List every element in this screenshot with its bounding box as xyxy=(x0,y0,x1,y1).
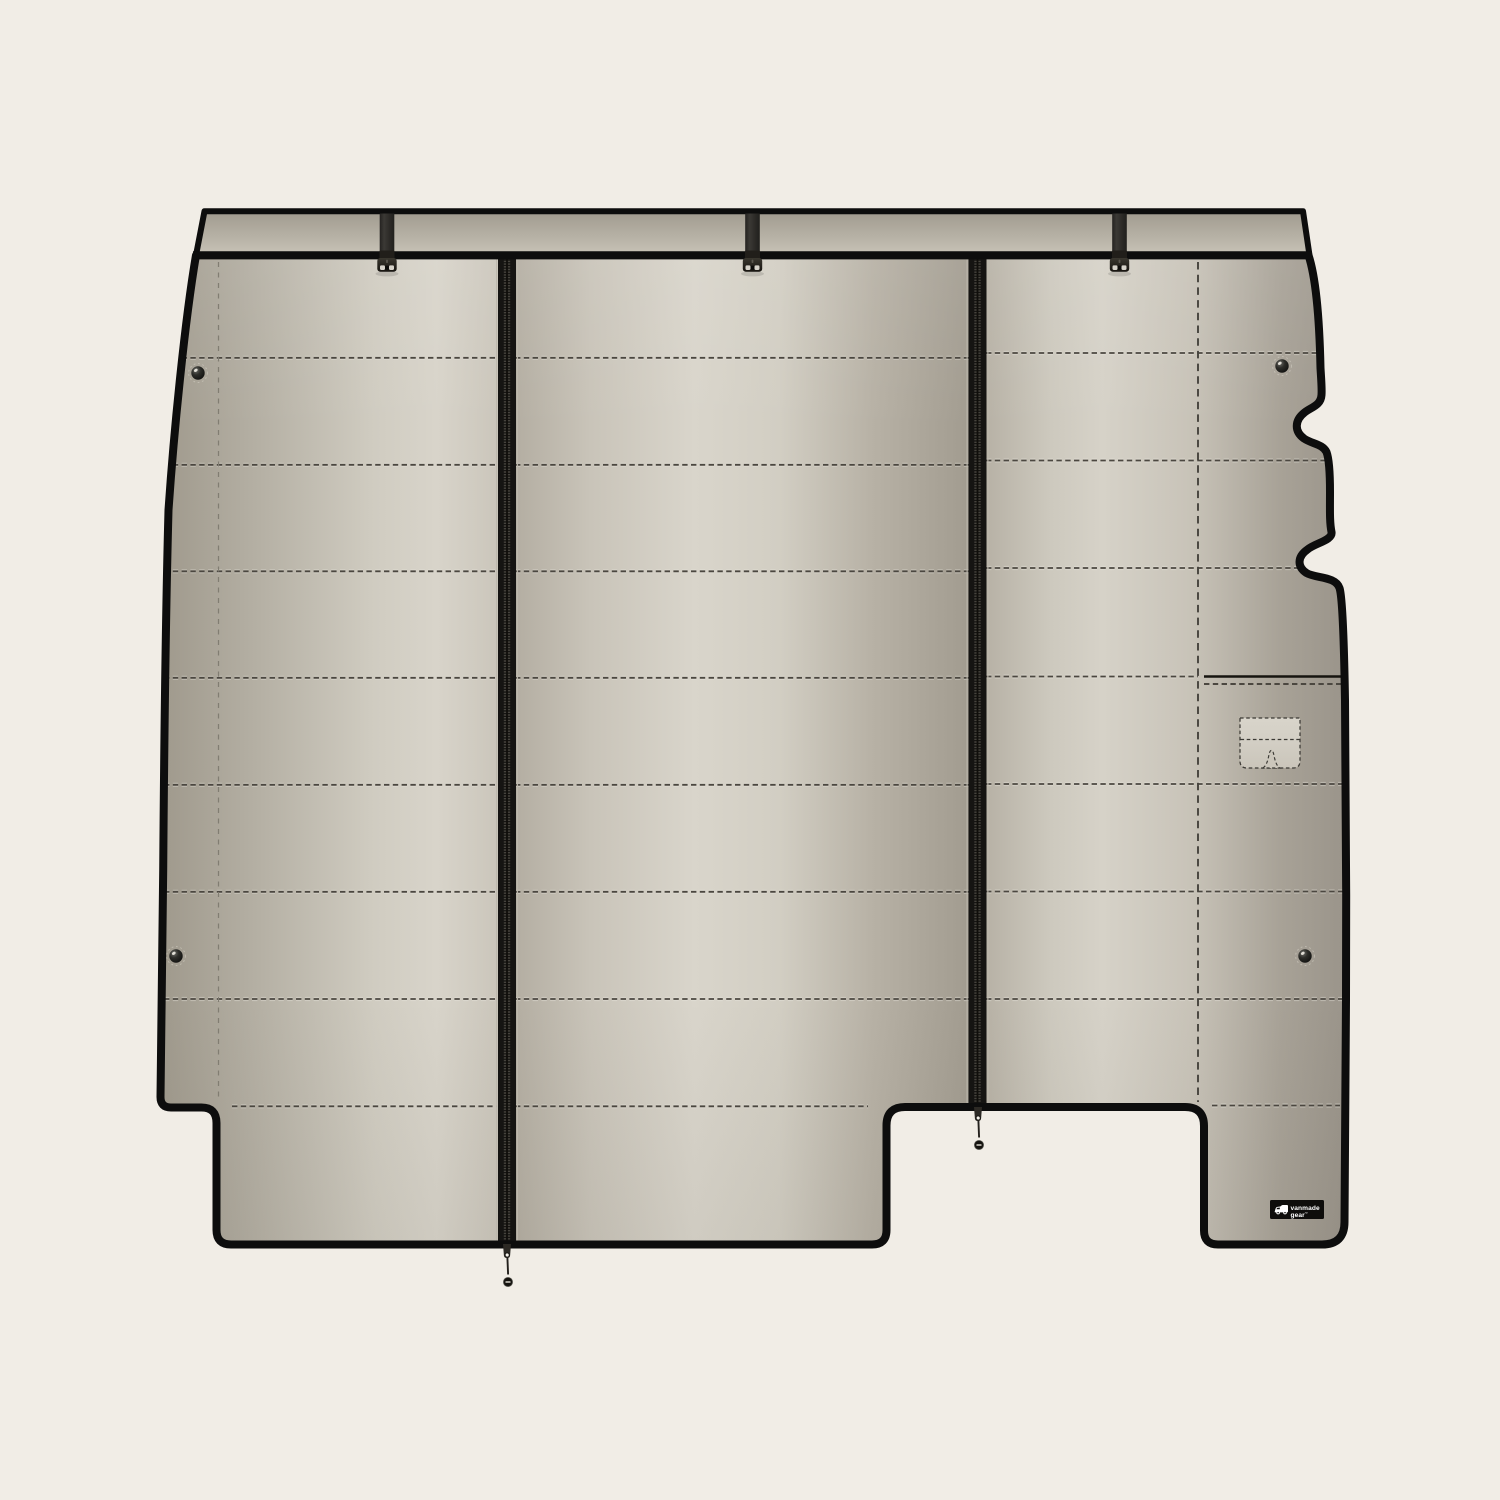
svg-text:gear: gear xyxy=(1291,1212,1306,1219)
svg-text:™: ™ xyxy=(1305,1212,1308,1216)
